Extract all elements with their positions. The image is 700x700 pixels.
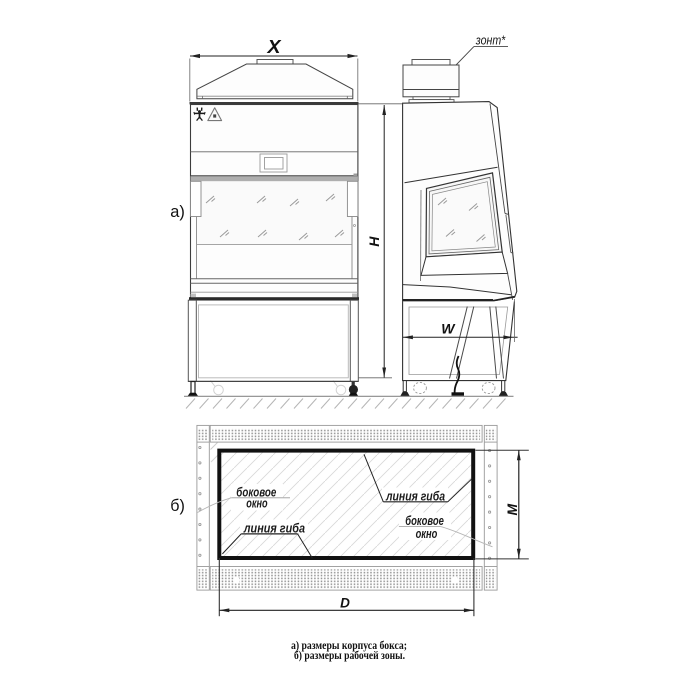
svg-text:а): а) [170, 202, 185, 221]
svg-text:M: M [504, 503, 520, 515]
svg-text:б): б) [170, 496, 185, 515]
svg-text:W: W [441, 321, 456, 337]
svg-text:окно: окно [416, 527, 438, 541]
svg-text:окно: окно [246, 497, 268, 511]
svg-text:боковое: боковое [405, 514, 444, 528]
svg-text:X: X [266, 37, 281, 57]
svg-text:б) размеры рабочей зоны.: б) размеры рабочей зоны. [294, 648, 405, 662]
svg-text:зонт*: зонт* [475, 34, 506, 48]
svg-text:D: D [340, 595, 350, 610]
svg-text:H: H [366, 236, 382, 247]
